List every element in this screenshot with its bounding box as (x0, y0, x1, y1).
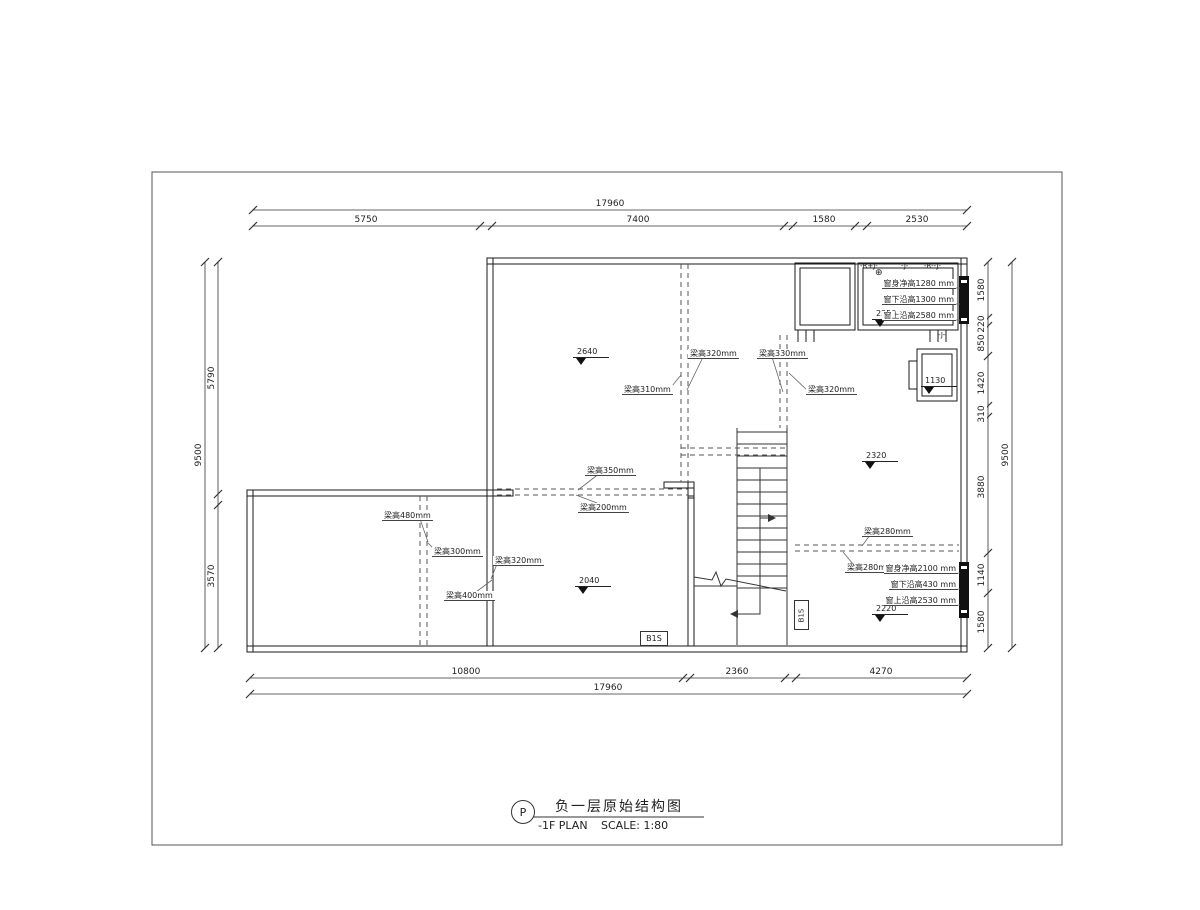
dim-bottom-total: 17960 (592, 683, 625, 693)
radiator-junction-tag: -R--J- (924, 262, 941, 270)
dim-bottom-seg-3: 4270 (868, 667, 895, 677)
beam-label: 梁高320mm (688, 349, 739, 359)
window-note: 窗上沿高2530 mm (884, 596, 959, 606)
drawing-title-en: -1F PLAN (538, 820, 588, 832)
window-note: 窗下沿高430 mm (889, 580, 958, 590)
window-note: 窗身净高2100 mm (884, 564, 959, 574)
dim-bottom-seg-2: 2360 (724, 667, 751, 677)
window-note: 窗下沿高1300 mm (882, 295, 957, 305)
elevation-triangle-icon (924, 387, 934, 394)
dim-top-seg-4: 2530 (904, 215, 931, 225)
dim-right-seg-6: 3880 (977, 474, 987, 501)
elevation-triangle-icon (875, 615, 885, 622)
dim-right-seg-1: 1580 (977, 277, 987, 304)
stairs (694, 428, 787, 645)
dim-left-seg-1: 5790 (207, 365, 217, 392)
plan-bubble: P (511, 800, 535, 824)
dim-top-total: 17960 (594, 199, 627, 209)
beam-label: 梁高320mm (493, 556, 544, 566)
dim-right-seg-4: 1420 (977, 370, 987, 397)
dim-left-outer: 9500 (194, 442, 204, 469)
elevation-triangle-icon (578, 587, 588, 594)
window-note: 窗上沿高2580 mm (882, 311, 957, 321)
junction-tag: -J- (938, 331, 945, 339)
dim-right-seg-8: 1580 (977, 609, 987, 636)
beam-label: 梁高400mm (444, 591, 495, 601)
dim-right-seg-7: 1140 (977, 562, 987, 589)
elevation-marker: 2040 (575, 568, 611, 594)
elevation-marker: 1130 (921, 368, 957, 394)
beam-label: 梁高300mm (432, 547, 483, 557)
elevation-triangle-icon (865, 462, 875, 469)
elevation-marker: 2320 (862, 443, 898, 469)
shaft-tag-box: B1S (794, 600, 809, 630)
dim-top-seg-2: 7400 (625, 215, 652, 225)
floor-plan-linework (0, 0, 1200, 910)
junction-tag: -J- (901, 262, 908, 270)
dim-right-seg-3: 850 (977, 332, 987, 353)
dim-right-seg-2: 220 (977, 313, 987, 334)
dim-left-seg-2: 3570 (207, 563, 217, 590)
beam-label: 梁高330mm (757, 349, 808, 359)
beam-label: 梁高200mm (578, 503, 629, 513)
beam-label: 梁高350mm (585, 466, 636, 476)
dim-right-seg-5: 310 (977, 403, 987, 424)
beam-label: 梁高280mm (862, 527, 913, 537)
drawing-title: 负一层原始结构图 (555, 799, 683, 815)
beam-label: 梁高310mm (622, 385, 673, 395)
window-note: 窗身净高1280 mm (882, 279, 957, 289)
elevation-triangle-icon (875, 320, 885, 327)
beam-label: 梁高480mm (382, 511, 433, 521)
cad-sheet: 17960 5750 7400 1580 2530 10800 2360 427… (0, 0, 1200, 910)
dim-top-seg-3: 1580 (811, 215, 838, 225)
dim-bottom-seg-1: 10800 (450, 667, 483, 677)
stair-tag-box: B1S (640, 631, 668, 646)
circle-cross-icon: ⊕ (875, 269, 883, 278)
drawing-scale: SCALE: 1:80 (601, 820, 668, 832)
dim-top-seg-1: 5750 (353, 215, 380, 225)
beam-label: 梁高320mm (806, 385, 857, 395)
elevation-triangle-icon (576, 358, 586, 365)
dim-right-outer: 9500 (1001, 442, 1011, 469)
elevation-marker: 2640 (573, 339, 609, 365)
